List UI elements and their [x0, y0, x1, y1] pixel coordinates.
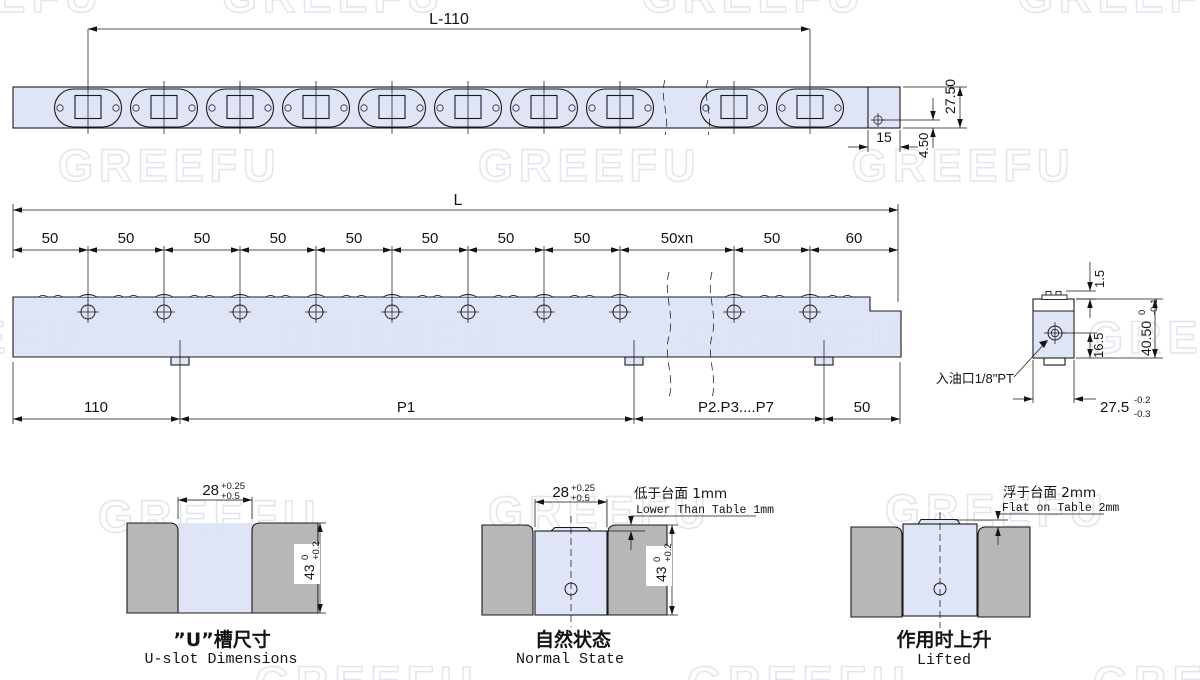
table-block-left: [127, 523, 178, 613]
watermark-logo: GREEFU: [1018, 0, 1200, 22]
dim-slot-depth-tol-upper: 0: [652, 557, 663, 562]
pitch-dim-lines: [13, 246, 898, 302]
section-bottom-tab: [1044, 358, 1065, 365]
dim-section-width-label: 27.5: [1100, 399, 1129, 416]
dim-end-label: 15: [876, 129, 892, 145]
dim-hole-offset-label: 4.50: [916, 133, 931, 158]
dim-slot-depth-label: 43: [301, 564, 317, 580]
dim-section-height-tol-upper: 0: [1137, 310, 1148, 315]
dim-slot-depth-tol-lower: +0.2: [663, 543, 674, 562]
pitch-label: 50: [574, 230, 591, 247]
caption-lifted-en: Lifted: [917, 652, 971, 669]
dim-slot-depth-tol-lower: +0.2: [311, 541, 322, 560]
dim-height-label: 27.50: [942, 79, 958, 114]
note-en: Flat on Table 2mm: [1002, 502, 1119, 515]
table-block-left: [482, 525, 533, 615]
watermark-logo: GREEFU: [687, 657, 911, 680]
u-slot-area: [178, 523, 252, 613]
dim-slot-depth-label: 43: [653, 566, 669, 582]
engineering-drawing-page: GREEFU GREEFU GREEFU GREEFU GREEFU GREEF…: [0, 0, 1200, 680]
table-block-right: [978, 527, 1030, 617]
caption-normal-cn: 自然状态: [535, 628, 611, 651]
section-roller: [1042, 292, 1067, 300]
watermark-logo: GREEFU: [58, 140, 282, 191]
top-view: L-110 27.50 4.50 15: [13, 11, 967, 158]
dim-section-width: 27.5 -0.2 -0.3: [1013, 360, 1150, 420]
dim-slot-width-label: 28: [552, 484, 569, 501]
oil-port-leader: 入油口1/8"PT: [936, 340, 1048, 386]
bottom-dim-label: P1: [397, 399, 415, 416]
note-cn: 低于台面 1mm: [634, 486, 727, 502]
note-cn: 浮于台面 2mm: [1003, 485, 1096, 501]
pitch-label: 50: [422, 230, 439, 247]
section-body-fill: [1034, 311, 1074, 357]
caption-lifted-cn: 作用时上升: [896, 628, 991, 651]
dim-length-label: L-110: [429, 11, 469, 28]
bottom-dim-label: 110: [84, 399, 108, 416]
watermark-logo: GREEFU: [642, 0, 866, 22]
pitch-label: 50: [42, 230, 59, 247]
watermark-logo: GREEFU: [478, 140, 702, 191]
dim-roller-protrusion-label: 1.5: [1092, 270, 1107, 288]
watermark-logo: GREEFU: [222, 0, 446, 22]
watermark-logo: GREEFU: [0, 0, 104, 22]
dim-slot-width-tol-lower: +0.5: [571, 493, 590, 504]
dim-section-height-tol-lower: -0.1: [1149, 299, 1160, 315]
rail-front-body: [13, 297, 901, 357]
dim-height-2750: 27.50: [903, 79, 967, 128]
pitch-label: 50: [118, 230, 135, 247]
caption-u-slot-cn: ”U”槽尺寸: [173, 628, 270, 651]
dim-section-width-tol-lower: -0.3: [1134, 409, 1150, 420]
table-block-left: [851, 527, 902, 617]
dim-section-width-tol-upper: -0.2: [1134, 395, 1150, 406]
dim-port-depth-label: 16.5: [1091, 333, 1106, 358]
pitch-label: 50: [764, 230, 781, 247]
rail-roller-bump: [918, 520, 960, 525]
pitch-label: 50: [194, 230, 211, 247]
pitch-label: 50xn: [661, 230, 694, 247]
dim-slot-width-label: 28: [202, 482, 219, 499]
dim-bottom-row: 110 P1 P2.P3....P7 50: [13, 362, 900, 424]
front-view: L 50 50 50 50 50 50 50 50 50xn 50 60 110…: [13, 192, 901, 424]
dim-overall-label: L: [454, 192, 463, 209]
pitch-label: 50: [498, 230, 515, 247]
pitch-label: 50: [270, 230, 287, 247]
dim-overall-l: L: [13, 192, 898, 302]
dim-section-height-label: 40.50: [1138, 321, 1154, 356]
pitch-label: 60: [846, 230, 863, 247]
watermark-logo: GREEFU: [1093, 657, 1200, 680]
bottom-dim-label: 50: [854, 399, 871, 416]
bottom-dim-label: P2.P3....P7: [698, 399, 774, 416]
drawing-canvas: GREEFU GREEFU GREEFU GREEFU GREEFU GREEF…: [0, 0, 1200, 680]
note-en: Lower Than Table 1mm: [636, 504, 774, 517]
watermark-logo: GREEFU: [852, 140, 1076, 191]
caption-u-slot-en: U-slot Dimensions: [144, 651, 297, 668]
dim-slot-width-tol-lower: +0.5: [221, 491, 240, 502]
oil-port-label: 入油口1/8"PT: [936, 371, 1014, 386]
dim-slot-depth-tol-upper: 0: [300, 555, 311, 560]
pitch-label: 50: [346, 230, 363, 247]
caption-normal-en: Normal State: [516, 651, 624, 668]
dim-pitch-row: 50 50 50 50 50 50 50 50 50xn 50 60: [13, 230, 898, 302]
